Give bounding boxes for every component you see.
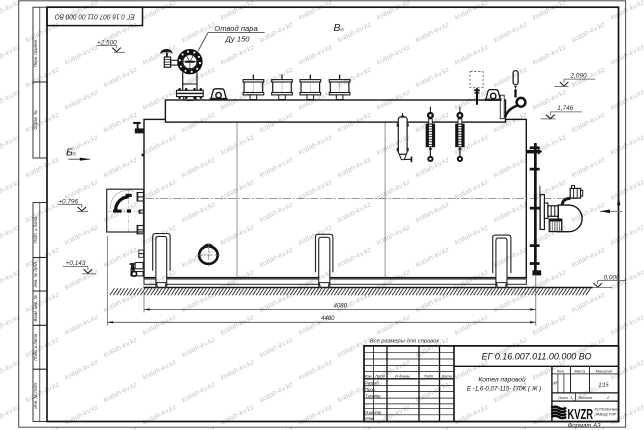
svg-text:Все размеры для справок: Все размеры для справок	[370, 338, 440, 344]
svg-text:KVZR: KVZR	[568, 407, 594, 423]
svg-text:N докум.: N докум.	[395, 375, 410, 379]
svg-text:Масса: Масса	[574, 369, 585, 373]
svg-text:Котел паровой: Котел паровой	[478, 375, 526, 383]
svg-text:Т.контр.: Т.контр.	[365, 393, 382, 398]
svg-text:Дата: Дата	[441, 375, 452, 379]
svg-text:Отвод пара: Отвод пара	[214, 24, 257, 33]
svg-text:Лист: Лист	[557, 396, 568, 400]
svg-text:Утв.: Утв.	[365, 416, 374, 421]
svg-text:Подп.: Подп.	[424, 375, 434, 379]
svg-text:Ду 150: Ду 150	[224, 35, 250, 44]
svg-text:Формат А3: Формат А3	[568, 424, 601, 430]
svg-text:Н.контр.: Н.контр.	[365, 410, 382, 415]
svg-text:ЗАВОД РЗР: ЗАВОД РЗР	[595, 412, 617, 417]
svg-text:Масштаб: Масштаб	[596, 369, 614, 373]
svg-text:В: В	[334, 22, 341, 34]
svg-text:Изм.: Изм.	[364, 375, 372, 379]
svg-text:1,746: 1,746	[557, 105, 573, 112]
svg-text:Перв. примен.: Перв. примен.	[33, 39, 38, 68]
